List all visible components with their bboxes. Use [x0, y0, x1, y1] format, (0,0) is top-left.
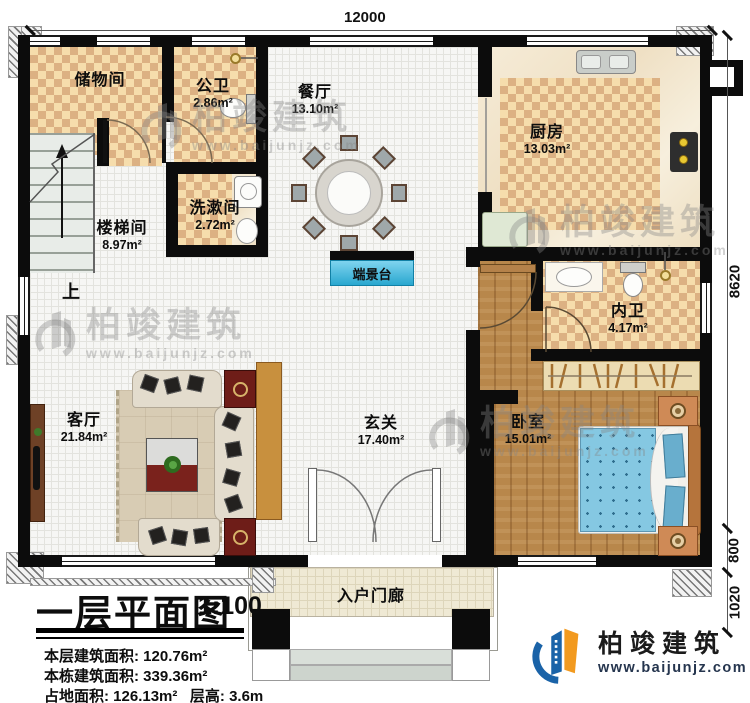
- bed-pillow-2: [662, 485, 685, 530]
- dim-top-label: 12000: [344, 9, 386, 26]
- land-area-line: 占地面积: 126.13m² 层高: 3.6m: [44, 685, 263, 703]
- dining-chair: [291, 184, 307, 202]
- wall-stub-1: [97, 118, 109, 166]
- window-top-1: [30, 35, 60, 47]
- dim-right-8620: 8620: [727, 259, 744, 305]
- innerbath-toilet-tank: [620, 262, 646, 273]
- tv-icon: [33, 446, 40, 490]
- dim-line-top: [30, 30, 712, 31]
- watermark-logo-icon: [508, 205, 552, 257]
- wall-bump-inner: [710, 67, 734, 87]
- burner-2: [679, 155, 688, 164]
- porch-step-1: [290, 649, 452, 665]
- watermark-logo-icon: [34, 308, 78, 360]
- pull-light-icon: [660, 270, 671, 281]
- room-label-inner-bath: 内卫4.17m²: [573, 303, 683, 335]
- dim-right-800: 800: [726, 531, 743, 571]
- ceiling-light-icon: [230, 53, 241, 64]
- medallion-icon: [233, 382, 248, 397]
- sofa-pillow: [225, 441, 242, 458]
- wall-innerbath-bottom: [531, 349, 700, 361]
- side-table-2: [224, 518, 256, 556]
- dim-right-1020: 1020: [727, 580, 744, 626]
- window-right-bath: [700, 283, 712, 333]
- lamp-icon: [670, 533, 686, 549]
- plan-scale: 1:100: [198, 592, 262, 621]
- watermark: 柏竣建筑www.baijunjz.com: [140, 100, 361, 152]
- storage-floor-ext: [100, 150, 162, 166]
- sofa-pillow: [171, 529, 188, 546]
- window-bottom-bedroom: [518, 555, 596, 567]
- room-label-porch: 入户门廊: [316, 588, 426, 606]
- porch-column-right: [452, 609, 490, 649]
- watermark: 柏竣建筑www.baijunjz.com: [508, 205, 729, 257]
- dining-chair: [391, 184, 407, 202]
- wall-bath-washroom: [166, 162, 268, 174]
- sofa-pillow: [193, 527, 210, 544]
- window-left: [18, 277, 30, 335]
- bed-pillow-1: [662, 433, 685, 478]
- floor-area-line: 本层建筑面积: 120.76m²: [44, 645, 207, 666]
- sink-basin-1: [581, 55, 601, 69]
- watermark: 柏竣建筑www.baijunjz.com: [428, 406, 649, 458]
- sink-basin-2: [609, 55, 629, 69]
- console-label: 端景台: [352, 264, 391, 283]
- sofa-pillow: [187, 375, 205, 393]
- stairs: [30, 133, 95, 273]
- nightstand-1: [658, 396, 698, 426]
- wall-bedroom-stub: [480, 390, 518, 404]
- room-label-foyer: 玄关17.40m²: [326, 415, 436, 447]
- title-underline-thin: [36, 637, 244, 639]
- watermark: 柏竣建筑www.baijunjz.com: [34, 308, 255, 360]
- bedroom-door-leaf: [480, 264, 536, 273]
- wall-kitchen-stub-top: [478, 47, 492, 97]
- burner-1: [679, 138, 688, 147]
- room-label-living: 客厅21.84m²: [29, 412, 139, 444]
- console-back: [330, 251, 414, 260]
- window-top-4: [310, 35, 433, 47]
- wall-foyer-stub: [466, 247, 480, 267]
- wall-washroom-bottom: [166, 245, 268, 257]
- brand-url: www.baijunjz.com: [598, 661, 747, 676]
- dining-table-top: [327, 171, 371, 215]
- building-area-line: 本栋建筑面积: 339.36m²: [44, 665, 207, 686]
- medallion-icon: [233, 530, 248, 545]
- side-table-1: [224, 370, 256, 408]
- bed-headboard: [688, 424, 701, 536]
- window-bottom-living: [62, 555, 215, 567]
- washer-drum-icon: [240, 183, 257, 200]
- window-top-2: [97, 35, 150, 47]
- plant-icon-inner: [169, 461, 177, 469]
- room-label-stairwell: 楼梯间8.97m²: [67, 220, 177, 252]
- nightstand-2: [658, 526, 698, 556]
- lamp-icon: [670, 403, 686, 419]
- hatch-porch-corner: [252, 567, 274, 593]
- watermark-logo-icon: [140, 100, 184, 152]
- watermark-logo-icon: [428, 406, 472, 458]
- window-top-5: [527, 35, 648, 47]
- brand-logo-icon: [532, 622, 588, 686]
- room-label-storage: 储物间: [45, 72, 155, 90]
- hatch-bottom-right: [672, 569, 712, 597]
- divider-panel: [256, 362, 282, 520]
- dining-chair: [340, 235, 358, 251]
- room-label-kitchen: 厨房13.03m²: [492, 124, 602, 156]
- wardrobe: [543, 361, 700, 391]
- porch-base-left: [252, 649, 290, 681]
- porch-step-2: [290, 665, 452, 681]
- entry-door-leaf-right: [432, 468, 441, 542]
- title-underline-thick: [36, 628, 244, 633]
- entry-door-leaf-left: [308, 468, 317, 542]
- hatch-left-mid: [6, 315, 18, 365]
- brand-name: 柏竣建筑: [598, 632, 747, 657]
- console-table: 端景台: [330, 260, 414, 286]
- porch-base-right: [452, 649, 490, 681]
- stairs-up-label: 上: [62, 278, 80, 304]
- brand-block: 柏竣建筑 www.baijunjz.com: [532, 622, 747, 686]
- innerbath-toilet-icon: [623, 273, 643, 297]
- floor-plan: 端景台: [0, 0, 750, 703]
- window-top-3: [192, 35, 245, 47]
- innerbath-sink-icon: [556, 267, 592, 287]
